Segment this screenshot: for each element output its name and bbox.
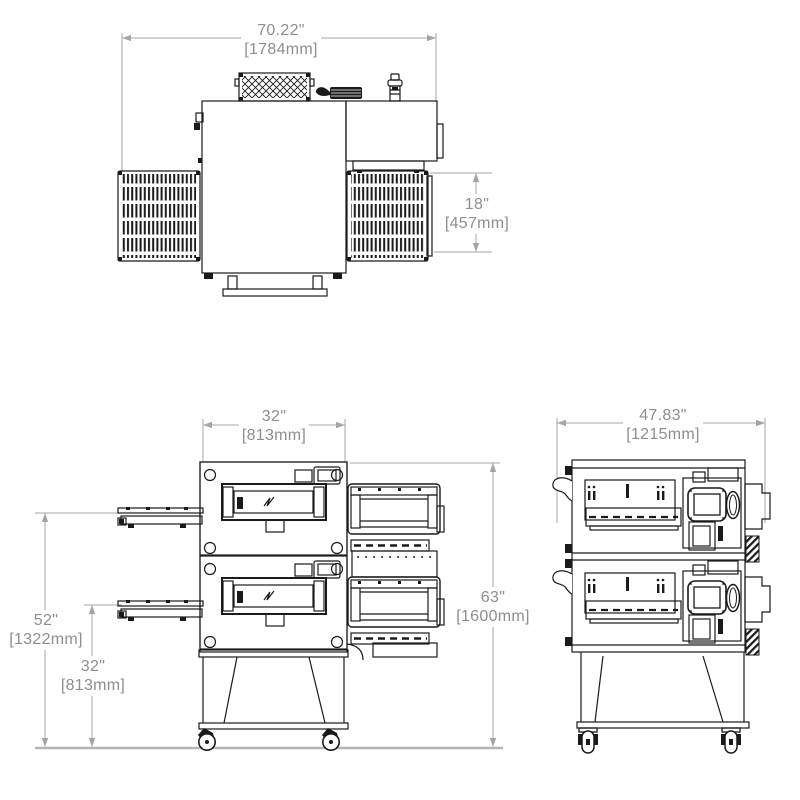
inches-value: 70.22" xyxy=(244,21,318,40)
front-view xyxy=(35,419,503,750)
upper-left-shelf xyxy=(118,507,203,528)
mm-value: [1600mm] xyxy=(456,607,530,626)
right-mid-panel xyxy=(352,551,437,577)
front-right-caster xyxy=(322,728,339,750)
inches-value: 32" xyxy=(61,657,125,676)
dim-conveyor-depth-label: 18" [457mm] xyxy=(442,194,512,234)
side-right-caster xyxy=(721,728,741,753)
side-view xyxy=(553,418,770,753)
handle-icon xyxy=(316,87,362,99)
front-lower-deck xyxy=(200,556,347,649)
side-latch-pin xyxy=(194,123,200,130)
side-view-machine xyxy=(553,460,770,753)
side-upper-deck xyxy=(553,466,770,562)
side-lower-deck xyxy=(553,559,770,655)
technical-drawing-page: 70.22" [1784mm] 18" [457mm] 32" [813mm] … xyxy=(0,0,800,800)
top-view xyxy=(118,33,492,296)
dim-upper-belt-height-label: 52" [1322mm] xyxy=(6,610,86,650)
dim-body-width-label: 32" [813mm] xyxy=(239,406,309,446)
dim-lower-belt-height-label: 32" [813mm] xyxy=(58,656,128,696)
vent-cap-icon xyxy=(388,74,402,101)
top-view-bottom-rail xyxy=(204,273,342,296)
side-left-caster xyxy=(578,728,598,753)
top-view-body xyxy=(202,101,346,273)
inches-value: 32" xyxy=(242,407,306,426)
vent-grille-icon xyxy=(235,73,314,101)
front-view-machine xyxy=(118,462,444,750)
dim-overall-height-label: 63" [1600mm] xyxy=(453,587,533,627)
front-view-dimension-lines xyxy=(35,419,500,747)
front-upper-deck xyxy=(200,462,347,555)
top-view-machine xyxy=(118,73,443,296)
lower-right-conveyor xyxy=(348,577,444,644)
mm-value: [1215mm] xyxy=(626,425,700,444)
inches-value: 52" xyxy=(9,611,83,630)
right-conveyor-grille xyxy=(347,171,432,261)
mm-value: [813mm] xyxy=(242,426,306,445)
mm-value: [1784mm] xyxy=(244,40,318,59)
upper-right-conveyor xyxy=(348,484,444,551)
control-box xyxy=(346,101,443,173)
front-left-caster xyxy=(198,728,215,750)
lower-left-shelf xyxy=(118,600,203,621)
dim-top-width-label: 70.22" [1784mm] xyxy=(241,20,321,60)
inches-value: 63" xyxy=(456,588,530,607)
mm-value: [813mm] xyxy=(61,676,125,695)
right-lower-panel xyxy=(373,643,437,657)
inches-value: 18" xyxy=(445,195,509,214)
front-stand xyxy=(199,650,348,729)
side-stand xyxy=(577,652,749,728)
inches-value: 47.83" xyxy=(626,406,700,425)
left-conveyor-grille xyxy=(118,171,200,261)
dim-depth-label: 47.83" [1215mm] xyxy=(623,405,703,445)
drain-elbow xyxy=(347,644,363,660)
mm-value: [1322mm] xyxy=(9,630,83,649)
mm-value: [457mm] xyxy=(445,214,509,233)
